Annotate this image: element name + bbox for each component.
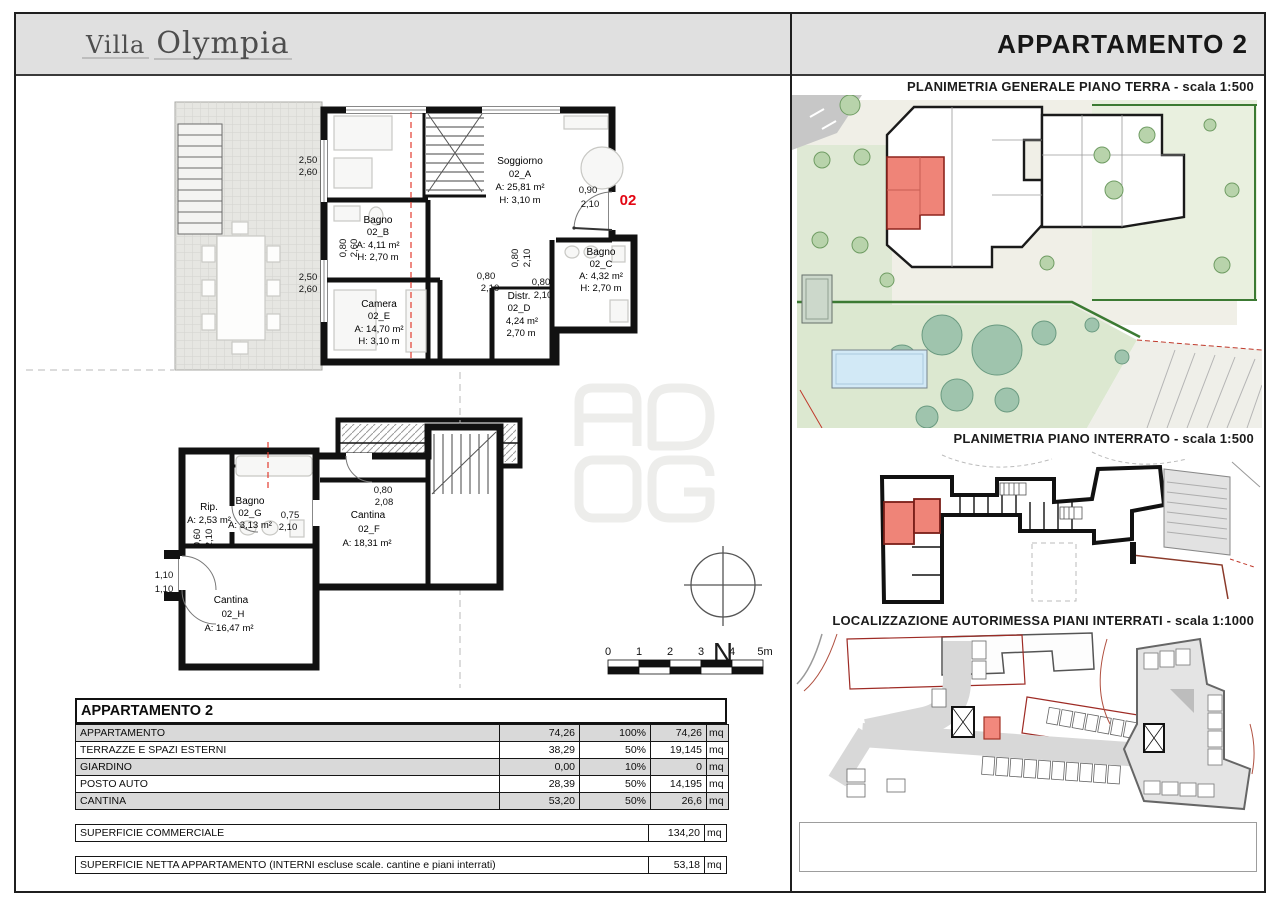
row-value: 28,39 <box>500 776 580 793</box>
villa-olympia-logo: Villa Olympia <box>16 28 292 61</box>
row-label: CANTINA <box>76 793 500 810</box>
terrace <box>175 102 322 370</box>
site-plan-piano-terra <box>792 95 1262 428</box>
row-label: SUPERFICIE NETTA APPARTAMENTO (INTERNI e… <box>76 857 649 874</box>
room-label: Distr. <box>508 291 531 302</box>
room-label: Rip. <box>200 502 218 513</box>
table-row: SUPERFICIE NETTA APPARTAMENTO (INTERNI e… <box>76 857 727 874</box>
room-height: H: 3,10 m <box>499 195 540 206</box>
row-computed: 74,26 <box>651 725 707 742</box>
room-area: A: 4,32 m² <box>579 271 623 282</box>
dim-label: 0,80 <box>477 271 496 282</box>
room-label: Cantina <box>214 595 249 606</box>
site-plans-panel: PLANIMETRIA GENERALE PIANO TERRA - scala… <box>792 76 1264 891</box>
panel-divider <box>790 14 792 891</box>
room-code: 02_C <box>590 259 613 270</box>
room-height: H: 2,70 m <box>580 283 621 294</box>
stair-core-right <box>1144 724 1164 752</box>
floor-plans-drawing: Soggiorno 02_A A: 25,81 m² H: 3,10 m Bag… <box>16 76 790 691</box>
site-plan-piano-interrato <box>792 447 1262 610</box>
row-unit: mq <box>707 759 729 776</box>
sheet-body: Soggiorno 02_A A: 25,81 m² H: 3,10 m Bag… <box>16 76 1264 891</box>
section-title-autorimessa: LOCALIZZAZIONE AUTORIMESSA PIANI INTERRA… <box>792 610 1264 629</box>
row-computed: 26,6 <box>651 793 707 810</box>
row-computed: 14,195 <box>651 776 707 793</box>
section-title-piano-interrato: PLANIMETRIA PIANO INTERRATO - scala 1:50… <box>792 428 1264 447</box>
row-unit: mq <box>707 742 729 759</box>
room-code: 02_G <box>238 508 261 519</box>
row-computed: 0 <box>651 759 707 776</box>
room-label: Bagno <box>587 247 616 258</box>
row-pct: 50% <box>580 776 651 793</box>
room-code: 02_H <box>222 609 245 620</box>
dim-label: 0,80 <box>374 485 393 496</box>
row-computed: 19,145 <box>651 742 707 759</box>
commercial-surface-table: SUPERFICIE COMMERCIALE 134,20 mq <box>75 824 727 842</box>
row-unit: mq <box>707 776 729 793</box>
notes-box <box>799 822 1257 872</box>
dim-label: 2,60 <box>299 284 318 295</box>
unit-number-label: 02 <box>620 192 637 209</box>
room-height: H: 2,70 m <box>357 252 398 263</box>
basement-walls-left <box>182 451 316 667</box>
watermark-letter-a <box>579 388 637 446</box>
room-code: 02_B <box>367 227 389 238</box>
dim-label: 2,60 <box>299 167 318 178</box>
row-unit: mq <box>705 825 727 842</box>
plan-sheet: Villa Olympia APPARTAMENTO 2 <box>0 0 1280 905</box>
watermark-letter-d <box>652 388 710 446</box>
row-unit: mq <box>705 857 727 874</box>
room-label: Cantina <box>351 510 386 521</box>
row-pct: 50% <box>580 793 651 810</box>
dim-label: 0,80 <box>532 277 551 288</box>
apartment-plans-panel: Soggiorno 02_A A: 25,81 m² H: 3,10 m Bag… <box>16 76 790 891</box>
room-area: A: 4,11 m² <box>356 240 399 251</box>
row-label: SUPERFICIE COMMERCIALE <box>76 825 649 842</box>
room-area: 4,24 m² <box>506 316 538 327</box>
row-label: GIARDINO <box>76 759 500 776</box>
dim-label: 2,10 <box>204 529 215 548</box>
dim-label: 2,10 <box>534 290 553 301</box>
scale-tick-label: 0 <box>605 646 611 658</box>
area-table-title-cell: APPARTAMENTO 2 <box>76 699 726 723</box>
row-label: APPARTAMENTO <box>76 725 500 742</box>
basement-plan: Rip. A: 2,53 m² Bagno 02_G A: 3,13 m² Ca… <box>155 427 500 667</box>
room-area: A: 16,47 m² <box>204 623 253 634</box>
row-value: 0,00 <box>500 759 580 776</box>
dim-label: 0,80 <box>338 239 349 258</box>
terrace-stair <box>178 124 222 234</box>
row-value: 74,26 <box>500 725 580 742</box>
room-code: 02_A <box>509 169 532 180</box>
dim-label: 2,60 <box>349 239 360 258</box>
dim-label: 0,80 <box>510 249 521 268</box>
dim-label: 2,10 <box>279 522 298 533</box>
row-value: 53,18 <box>649 857 705 874</box>
building-footprint-right <box>1042 115 1184 227</box>
table-row: CANTINA 53,20 50% 26,6 mq <box>76 793 729 810</box>
room-area: A: 14,70 m² <box>354 324 403 335</box>
scale-tick-label: 5m <box>757 646 772 658</box>
table-row: POSTO AUTO 28,39 50% 14,195 mq <box>76 776 729 793</box>
area-summary: APPARTAMENTO 2 APPARTAMENTO 74,26 100% 7… <box>75 698 727 874</box>
dim-label: 1,10 <box>155 584 174 595</box>
room-height: 2,70 m <box>506 328 535 339</box>
row-unit: mq <box>707 793 729 810</box>
watermark-letter-g <box>652 460 710 518</box>
room-height: H: 3,10 m <box>358 336 399 347</box>
room-label: Camera <box>361 299 397 310</box>
table-row: APPARTAMENTO 74,26 100% 74,26 mq <box>76 725 729 742</box>
room-label: Bagno <box>236 496 265 507</box>
main-floor-plan: Soggiorno 02_A A: 25,81 m² H: 3,10 m Bag… <box>26 102 636 688</box>
scale-tick-label: 3 <box>698 646 704 658</box>
sheet-header: Villa Olympia APPARTAMENTO 2 <box>16 14 1264 76</box>
row-unit: mq <box>707 725 729 742</box>
row-label: TERRAZZE E SPAZI ESTERNI <box>76 742 500 759</box>
dim-label: 2,50 <box>299 272 318 283</box>
dim-label: 2,10 <box>581 199 600 210</box>
table-row: GIARDINO 0,00 10% 0 mq <box>76 759 729 776</box>
scale-tick-label: 4 <box>729 646 735 658</box>
page-title: APPARTAMENTO 2 <box>997 29 1264 60</box>
row-pct: 50% <box>580 742 651 759</box>
highlighted-parking-stall <box>984 717 1000 739</box>
room-code: 02_E <box>368 311 390 322</box>
dim-label: 2,10 <box>522 249 533 268</box>
garage-localization-plan <box>792 629 1262 819</box>
garage-ramp <box>1164 469 1230 555</box>
stair-core-left <box>952 707 974 737</box>
highlighted-cantina-1 <box>884 502 914 544</box>
highlighted-cantina-2 <box>914 499 940 533</box>
room-label: Bagno <box>364 215 393 226</box>
room-code: 02_D <box>508 303 531 314</box>
room-area: A: 3,13 m² <box>228 520 272 531</box>
room-code: 02_F <box>358 524 380 535</box>
row-value: 38,29 <box>500 742 580 759</box>
dim-label: 1,10 <box>155 570 174 581</box>
scale-bar: 0 1 2 3 4 5m <box>605 646 773 674</box>
row-value: 134,20 <box>649 825 705 842</box>
dim-label: 0,60 <box>192 529 203 548</box>
area-table-title: APPARTAMENTO 2 <box>75 698 727 724</box>
watermark-letter-o <box>579 460 637 518</box>
dim-label: 2,50 <box>299 155 318 166</box>
logo-line2: Olympia <box>154 30 291 61</box>
table-row: SUPERFICIE COMMERCIALE 134,20 mq <box>76 825 727 842</box>
dim-label: 2,08 <box>375 497 394 508</box>
scale-tick-label: 2 <box>667 646 673 658</box>
dim-label: 0,90 <box>579 185 598 196</box>
room-area: A: 25,81 m² <box>495 182 544 193</box>
scale-tick-label: 1 <box>636 646 642 658</box>
dim-label: 0,75 <box>281 510 300 521</box>
adog-watermark-logo <box>579 388 710 518</box>
room-label: Soggiorno <box>497 156 543 167</box>
row-value: 53,20 <box>500 793 580 810</box>
dim-label: 2,10 <box>481 283 500 294</box>
row-pct: 10% <box>580 759 651 776</box>
table-row: TERRAZZE E SPAZI ESTERNI 38,29 50% 19,14… <box>76 742 729 759</box>
sheet-frame: Villa Olympia APPARTAMENTO 2 <box>14 12 1266 893</box>
room-area: A: 2,53 m² <box>187 515 231 526</box>
room-area: A: 18,31 m² <box>342 538 391 549</box>
section-title-piano-terra: PLANIMETRIA GENERALE PIANO TERRA - scala… <box>792 76 1264 95</box>
row-label: POSTO AUTO <box>76 776 500 793</box>
area-table: APPARTAMENTO 74,26 100% 74,26 mq TERRAZZ… <box>75 724 729 810</box>
net-surface-table: SUPERFICIE NETTA APPARTAMENTO (INTERNI e… <box>75 856 727 874</box>
north-arrow-icon: N <box>684 546 762 668</box>
swimming-pool <box>832 350 927 388</box>
logo-line1: Villa <box>82 34 149 59</box>
row-pct: 100% <box>580 725 651 742</box>
